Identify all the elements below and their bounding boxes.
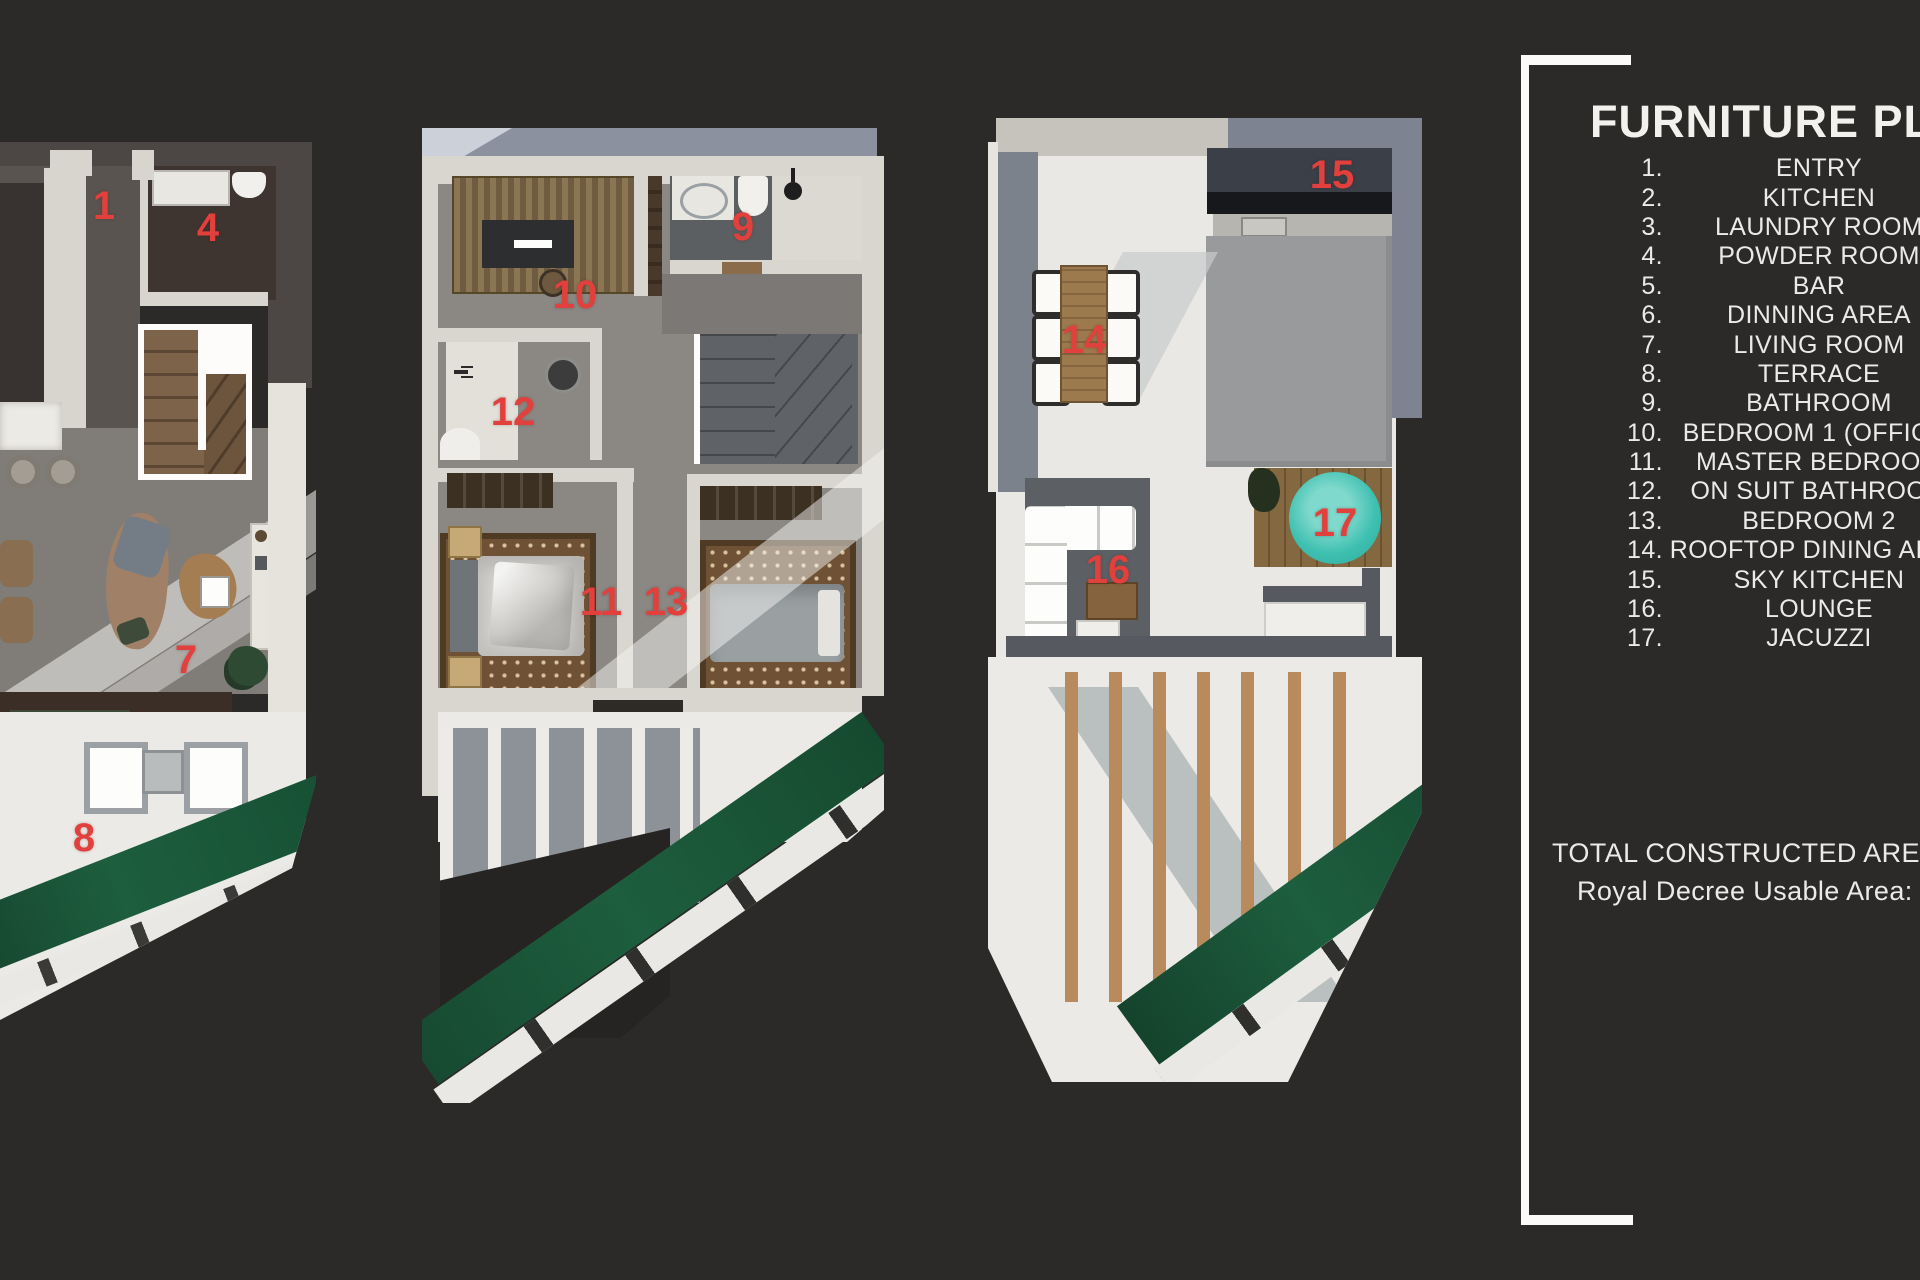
ensuite-wall (438, 328, 602, 342)
legend-item-label: BATHROOM (1663, 389, 1920, 418)
sky-kitchen-backsplash (1207, 148, 1392, 192)
legend-item-label: BEDROOM 1 (OFFICE) (1663, 419, 1920, 448)
sun-lounger (84, 742, 148, 814)
legend-item-label: SKY KITCHEN (1663, 566, 1920, 595)
legend-item-number: 17. (1552, 624, 1663, 653)
stair-spine (198, 330, 206, 450)
legend-item-label: ENTRY (1663, 154, 1920, 183)
legend-item: 4.POWDER ROOM (1552, 242, 1920, 271)
kitchen-wall (44, 168, 86, 430)
legend-item-label: KITCHEN (1663, 184, 1920, 213)
legend-item-number: 6. (1552, 301, 1663, 330)
bed2-pillow (818, 590, 840, 656)
floor-plan-ground: 1 4 7 8 (0, 128, 316, 1028)
terrace-wall (0, 692, 232, 712)
bed-headboard (450, 560, 478, 652)
wall-cap (132, 150, 154, 180)
legend-item-number: 16. (1552, 595, 1663, 624)
legend-item-number: 9. (1552, 389, 1663, 418)
roof-edge (996, 118, 1236, 156)
staircase (138, 324, 252, 480)
marker-jacuzzi: 17 (1313, 503, 1358, 543)
floor-plan-rooftop: 15 14 17 16 (988, 112, 1422, 1082)
nightstand (448, 656, 482, 688)
hall-closet (648, 176, 662, 296)
legend-item-label: BEDROOM 2 (1663, 507, 1920, 536)
ensuite-toilet (440, 428, 480, 460)
legend-item-number: 14. (1552, 536, 1663, 565)
legend-item-label: ROOFTOP DINING AREA (1663, 536, 1920, 565)
parapet-wall (1006, 636, 1392, 657)
legend-list: 1.ENTRY 2.KITCHEN 3.LAUNDRY ROOM 4.POWDE… (1552, 154, 1920, 654)
pergola-post (1241, 672, 1254, 942)
marker-master-bedroom: 11 (580, 582, 622, 622)
legend-item-label: MASTER BEDROOM (1663, 448, 1920, 477)
legend-item-number: 11. (1552, 448, 1663, 477)
bar-stool (6, 455, 40, 489)
sky-kitchen-counter-dark (1207, 192, 1392, 214)
sky-kitchen-counter (1213, 214, 1392, 236)
pergola-post (1109, 672, 1122, 1002)
pergola-post (1065, 672, 1078, 1002)
legend-item: 7.LIVING ROOM (1552, 330, 1920, 359)
legend-item: 13.BEDROOM 2 (1552, 507, 1920, 536)
marker-entry: 1 (93, 186, 115, 226)
legend-item-number: 3. (1552, 213, 1663, 242)
stair-treads (700, 334, 775, 464)
marker-bathroom: 9 (732, 207, 754, 247)
dining-chair (0, 540, 33, 587)
stair-treads-upper (144, 330, 204, 474)
legend-title: FURNITURE PLAN (1590, 96, 1920, 148)
legend-item-number: 5. (1552, 272, 1663, 301)
shelf-item (255, 556, 267, 570)
nightstand (448, 526, 482, 558)
deck-plant (1248, 468, 1280, 512)
ensuite-wall-right (590, 342, 602, 460)
legend-item-label: BAR (1663, 272, 1920, 301)
dining-chair (0, 597, 33, 643)
total-constructed-area: TOTAL CONSTRUCTED AREA: 1 (1552, 838, 1920, 869)
shelf-item (255, 530, 267, 542)
table-book (200, 576, 230, 608)
legend-item-label: LIVING ROOM (1663, 331, 1920, 360)
outer-wall-right (268, 383, 306, 713)
kitchen-island (0, 402, 62, 450)
legend-item-number: 10. (1552, 419, 1663, 448)
wall (634, 176, 648, 296)
floor-plan-first: 10 9 12 11 13 (422, 128, 884, 1103)
legend-item-label: DINNING AREA (1663, 301, 1920, 330)
legend-item: 11.MASTER BEDROOM (1552, 448, 1920, 477)
marker-lounge: 16 (1086, 550, 1131, 590)
outer-wall-right (862, 156, 884, 696)
legend-item-number: 13. (1552, 507, 1663, 536)
faucet-icon (454, 370, 468, 374)
legend-item-number: 2. (1552, 184, 1663, 213)
legend-item: 14.ROOFTOP DINING AREA (1552, 536, 1920, 565)
ensuite-sink (545, 357, 581, 393)
legend-item: 2.KITCHEN (1552, 183, 1920, 212)
bathroom-basin (680, 183, 728, 219)
stair-landing (662, 274, 862, 334)
legend-item: 15.SKY KITCHEN (1552, 565, 1920, 594)
outer-wall-left (422, 156, 438, 796)
staircase (694, 334, 858, 464)
marker-sky-kitchen: 15 (1310, 155, 1355, 195)
legend-item-number: 1. (1552, 154, 1663, 183)
wardrobe (447, 473, 553, 508)
roof-edge-column (1392, 118, 1422, 418)
plant (228, 646, 268, 686)
skylight-panel (1206, 236, 1392, 467)
legend-item-label: JACUZZI (1663, 624, 1920, 653)
desk-blotter (514, 240, 552, 248)
legend-item: 10.BEDROOM 1 (OFFICE) (1552, 419, 1920, 448)
legend-item: 8.TERRACE (1552, 360, 1920, 389)
powder-room-sink (152, 170, 230, 206)
door-threshold (722, 262, 762, 274)
towel-hook-stem (791, 168, 795, 182)
legend-item: 5.BAR (1552, 272, 1920, 301)
wall (670, 260, 862, 274)
legend-item: 1.ENTRY (1552, 154, 1920, 183)
legend-item-number: 4. (1552, 242, 1663, 271)
legend-item: 9.BATHROOM (1552, 389, 1920, 418)
royal-decree-usable-area: Royal Decree Usable Area: 9 (1577, 876, 1920, 907)
legend-item-label: POWDER ROOM (1663, 242, 1920, 271)
stair-treads-winder (204, 374, 246, 474)
legend-item: 12.ON SUIT BATHROOM (1552, 477, 1920, 506)
legend-item: 17.JACUZZI (1552, 624, 1920, 653)
legend-item-label: ON SUIT BATHROOM (1663, 477, 1920, 506)
legend-item: 6.DINNING AREA (1552, 301, 1920, 330)
legend-item: 16.LOUNGE (1552, 595, 1920, 624)
pergola-post (1288, 672, 1301, 907)
legend-item-label: TERRACE (1663, 360, 1920, 389)
outer-wall-left (988, 142, 998, 492)
marker-rooftop-dining: 14 (1062, 320, 1107, 360)
marker-bedroom1-office: 10 (553, 275, 598, 315)
panel-border-left (1521, 55, 1529, 1225)
legend-item-label: LOUNGE (1663, 595, 1920, 624)
marker-living-room: 7 (175, 640, 197, 680)
marker-on-suit-bathroom: 12 (491, 392, 536, 432)
marker-powder-room: 4 (197, 208, 219, 248)
legend-item-number: 7. (1552, 331, 1663, 360)
panel-border-top (1521, 55, 1631, 65)
marker-terrace: 8 (73, 818, 95, 858)
bar-stool (46, 455, 80, 489)
marker-bedroom2: 13 (644, 582, 689, 622)
pergola-post (1197, 672, 1210, 972)
legend-item-number: 8. (1552, 360, 1663, 389)
powder-room-wall (140, 292, 268, 306)
kitchen-sink (1241, 217, 1287, 237)
sun-lounger (184, 742, 248, 814)
stair-treads-winder (775, 334, 852, 464)
legend-item-number: 15. (1552, 566, 1663, 595)
legend-item: 3.LAUNDRY ROOM (1552, 213, 1920, 242)
legend-item-number: 12. (1552, 477, 1663, 506)
furniture-plan-slide: { "panel": { "title": "FURNITURE PLAN", … (0, 0, 1920, 1280)
pergola-post (1153, 672, 1166, 992)
kitchen-cabinets (0, 183, 44, 430)
panel-border-bottom (1521, 1215, 1633, 1225)
duvet-fold (489, 561, 575, 650)
legend-item-label: LAUNDRY ROOM (1663, 213, 1920, 242)
towel-hook-icon (784, 182, 802, 200)
terrace-side-table (142, 750, 184, 794)
